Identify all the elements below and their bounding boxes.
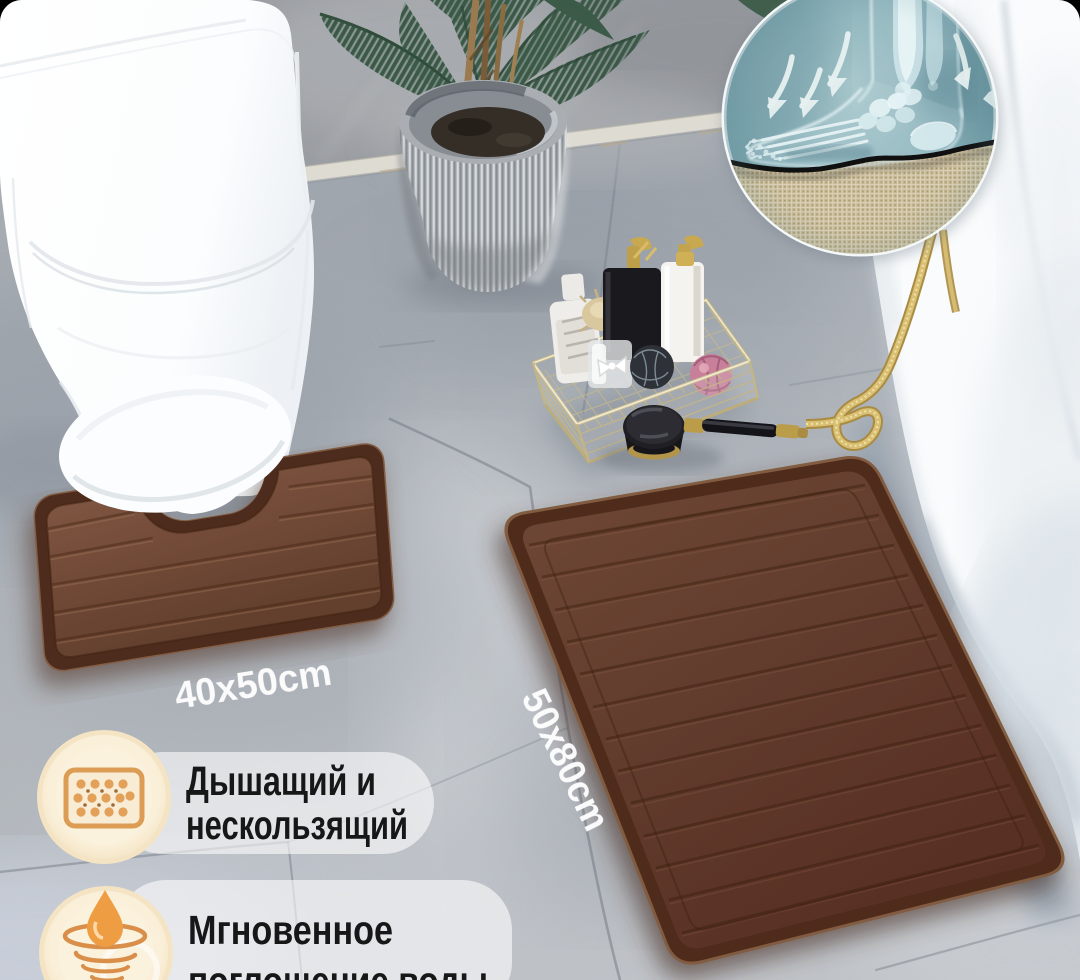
svg-text:Мгновенное: Мгновенное: [188, 907, 393, 953]
svg-text:нескользящий: нескользящий: [186, 802, 408, 848]
svg-text:Дышащий и: Дышащий и: [186, 758, 376, 804]
svg-text:поглощение воды: поглощение воды: [188, 958, 488, 980]
